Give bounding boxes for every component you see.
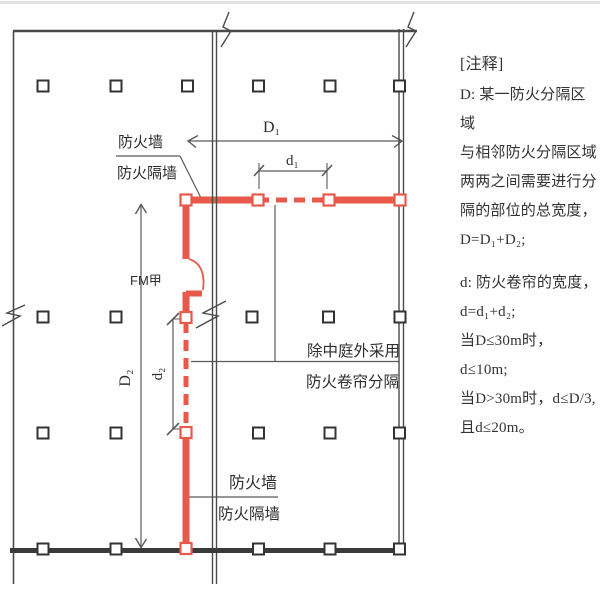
column-marker (38, 81, 49, 92)
column-marker (394, 428, 405, 439)
label-fire-wall-bottom: 防火墙 (229, 474, 277, 492)
wall-node (395, 195, 406, 206)
leader-diagonal (180, 156, 201, 198)
note-line: d: 防火卷帘的宽度， (460, 269, 600, 298)
note-line: 两两之间需要进行分 (460, 168, 600, 197)
label-fire-wall-top: 防火墙 (118, 134, 163, 151)
break-symbol-icon (196, 301, 226, 328)
column-marker (395, 312, 406, 323)
wall-node (253, 195, 264, 206)
column-marker (111, 312, 122, 323)
wall-node (181, 195, 192, 206)
note-line: 当D≤30m时，d≤10m; (460, 327, 600, 385)
column-marker (253, 428, 264, 439)
note-line: d=d₁+d₂; (460, 298, 600, 327)
column-marker (325, 544, 336, 555)
label-dim-d1: d₁ (286, 153, 299, 169)
break-symbol-icon (221, 12, 231, 47)
column-marker (38, 428, 49, 439)
label-dim-D1: D₁ (263, 119, 280, 136)
label-curtain-note-line2: 防火卷帘分隔 (306, 373, 399, 391)
column-grid (38, 81, 406, 555)
wall-node (181, 427, 192, 438)
wall-node (181, 543, 192, 554)
notes-header: [注释] (460, 50, 600, 79)
wall-node (324, 195, 335, 206)
fire-separation-diagram-page: 防火墙 防火隔墙 D₁ d₁ D₂ d₂ FM甲 除中庭外采用 防火卷帘分隔 防… (0, 0, 600, 600)
note-line: 当D>30m时，d≤D/3, (460, 385, 600, 414)
column-marker (253, 544, 264, 555)
column-marker (247, 312, 258, 323)
label-curtain-note-line1: 除中庭外采用 (307, 342, 400, 360)
note-line: 隔的部位的总宽度， (460, 197, 600, 226)
column-marker (394, 544, 405, 555)
label-fire-partition-wall-top: 防火隔墙 (117, 165, 177, 182)
label-dim-D2: D₂ (117, 369, 134, 386)
building-outline (10, 29, 417, 584)
column-marker (111, 428, 122, 439)
label-leaders (116, 156, 399, 497)
note-line: 且d≤20m。 (460, 414, 600, 443)
notes-panel: [注释] D: 某一防火分隔区域 与相邻防火分隔区域 两两之间需要进行分 隔的部… (460, 50, 600, 443)
fire-door-swing-arc-icon (189, 259, 204, 290)
column-marker (325, 81, 336, 92)
break-symbols (2, 12, 416, 328)
note-line: D=D₁+D₂; (460, 226, 600, 255)
column-marker (38, 312, 49, 323)
column-marker (323, 312, 334, 323)
column-marker (182, 81, 193, 92)
label-fire-door-FM: FM甲 (130, 273, 162, 288)
column-marker (394, 81, 405, 92)
break-symbol-icon (406, 12, 416, 47)
note-line: D: 某一防火分隔区域 (460, 81, 600, 139)
column-marker (325, 428, 336, 439)
column-marker (38, 544, 49, 555)
wall-node (181, 312, 192, 323)
column-marker (111, 544, 122, 555)
column-marker (111, 81, 122, 92)
label-dim-d2: d₂ (150, 368, 166, 381)
column-marker (253, 81, 264, 92)
note-line: 与相邻防火分隔区域 (460, 139, 600, 168)
label-fire-partition-wall-bottom: 防火隔墙 (218, 505, 280, 523)
